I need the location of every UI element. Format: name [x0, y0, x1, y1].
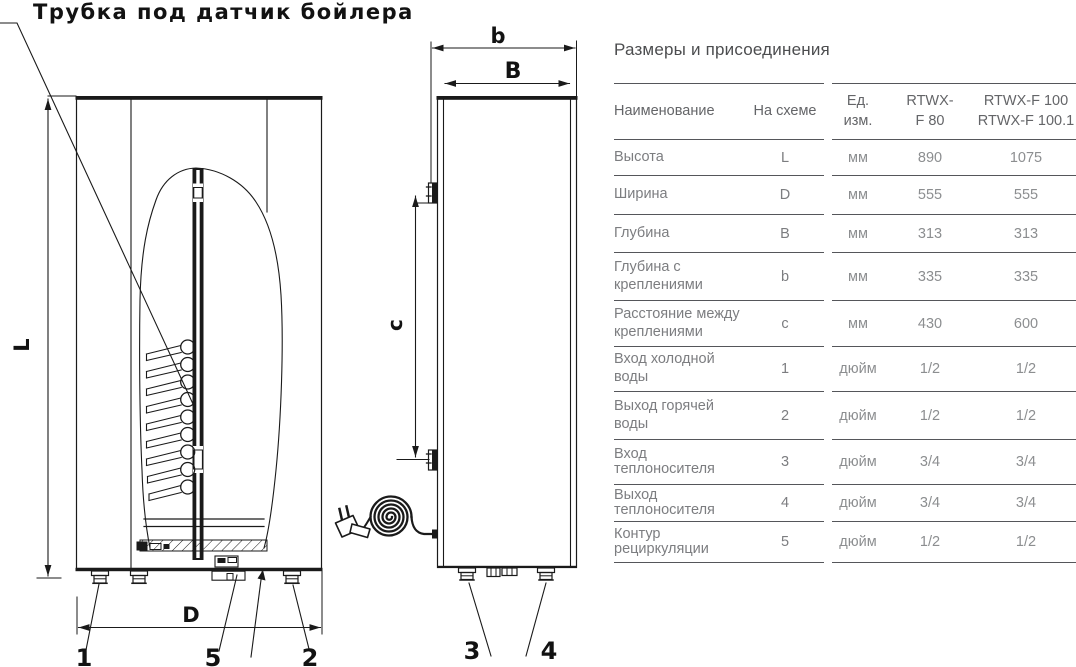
table-header-row: Наименование На схеме Ед. изм. RTWX- F 8… [614, 83, 1076, 140]
side-body-outline [438, 98, 577, 568]
dimension-lines [37, 41, 577, 634]
col-header-name: Наименование [614, 102, 746, 122]
table-row: ГлубинаB мм313313 [614, 215, 1076, 253]
side-top-edge [437, 96, 578, 100]
leader-5a [219, 575, 237, 651]
label-c: c [383, 319, 407, 331]
side-fittings [459, 568, 555, 580]
table-row: Выход теплоносителя4 дюйм3/43/4 [614, 485, 1076, 522]
label-B: B [505, 59, 522, 84]
leader-5b [251, 572, 262, 657]
col-header-unit: Ед. изм. [832, 92, 884, 131]
power-cord [336, 496, 439, 538]
leader-5-arrowhead [258, 570, 266, 581]
callout-title: Трубка под датчик бойлера [33, 0, 414, 24]
table-row: Расстояние между креплениямиc мм430600 [614, 301, 1076, 347]
cord-to-plug [364, 517, 371, 528]
fitting [459, 568, 476, 580]
port-label-2: 2 [302, 644, 319, 667]
front-view [76, 96, 323, 583]
table-row: ВысотаL мм8901075 [614, 140, 1076, 176]
heat-exchanger-coil [147, 340, 195, 501]
leader-2 [293, 585, 309, 649]
foot [92, 571, 109, 583]
table-row: Глубина с креплениямиb мм335335 [614, 253, 1076, 301]
table-row: Вход холодной воды1 дюйм1/21/2 [614, 347, 1076, 392]
cord-entry [432, 530, 438, 539]
cord-spiral [371, 496, 412, 535]
technical-drawing: Трубка под датчик бойлера [0, 0, 612, 667]
col-header-scheme: На схеме [746, 102, 824, 122]
label-b: b [490, 24, 505, 48]
foot [131, 571, 148, 583]
power-plug-icon [336, 507, 371, 538]
port-label-3: 3 [464, 637, 481, 665]
table-row: ШиринаD мм555555 [614, 176, 1076, 215]
side-view [336, 96, 578, 580]
wall-bracket-top [427, 183, 438, 203]
port-label-4: 4 [541, 637, 558, 665]
col-header-rtwx-f100: RTWX-F 100 RTWX-F 100.1 [976, 92, 1076, 131]
port-label-1: 1 [76, 644, 93, 667]
label-L: L [10, 338, 34, 351]
table-row: Вход теплоносителя3 дюйм3/43/4 [614, 440, 1076, 485]
boiler-spec-sheet: Трубка под датчик бойлера [0, 0, 1076, 667]
front-feet [92, 571, 301, 583]
table-title: Размеры и присоединения [614, 40, 1076, 83]
dimensions-table: Размеры и присоединения Наименование На … [614, 40, 1076, 563]
col-header-rtwx-f80: RTWX- F 80 [884, 92, 976, 131]
table-row: Контур рециркуляции5 дюйм1/21/2 [614, 522, 1076, 563]
front-top-edge [76, 96, 323, 100]
cord-to-body [412, 517, 435, 534]
label-D: D [182, 603, 199, 627]
foot [284, 571, 301, 583]
table-row: Выход горячей воды2 дюйм1/21/2 [614, 392, 1076, 440]
port-label-5: 5 [205, 644, 222, 667]
leader-1 [86, 584, 99, 650]
fitting [538, 568, 555, 580]
